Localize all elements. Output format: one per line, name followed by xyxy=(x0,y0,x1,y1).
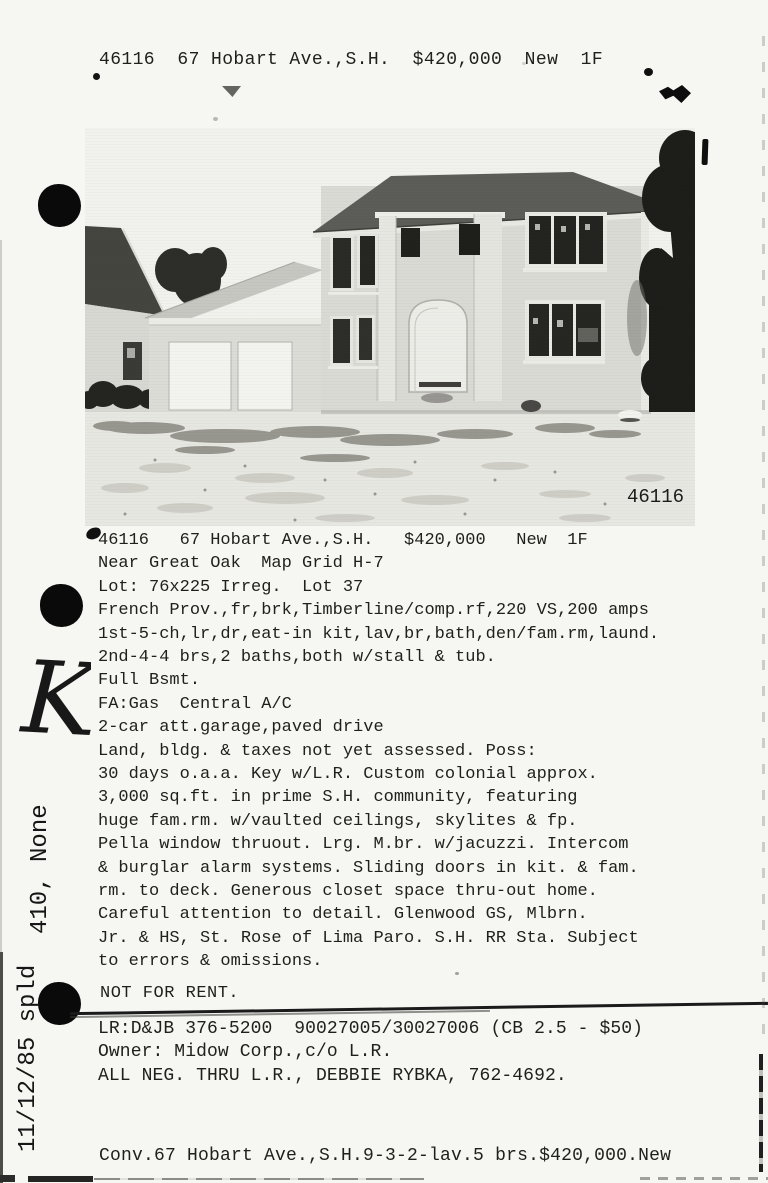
scanned-listing-page: { "header": { "line": "46116 67 Hobart A… xyxy=(0,0,768,1183)
listing-line: to errors & omissions. xyxy=(98,952,322,971)
listing-line: Lot: 76x225 Irreg. Lot 37 xyxy=(98,578,363,597)
listing-line: Land, bldg. & taxes not yet assessed. Po… xyxy=(98,742,537,761)
listing-line: FA:Gas Central A/C xyxy=(98,695,292,714)
agent-line: ALL NEG. THRU L.R., DEBBIE RYBKA, 762-46… xyxy=(98,1066,567,1086)
hip-roof xyxy=(313,172,677,232)
garage-wing xyxy=(145,262,323,412)
agent-line: LR:D&JB 376-5200 90027005/30027006 (CB 2… xyxy=(98,1019,643,1039)
property-photo: 46116 xyxy=(85,128,695,526)
scan-edge-line xyxy=(94,1178,424,1180)
dirt-mottles xyxy=(101,462,665,522)
left-edge-artifact xyxy=(0,952,3,1183)
photo-ground xyxy=(85,406,695,526)
ink-dot xyxy=(93,73,100,80)
house-photo-illustration: 46116 xyxy=(85,128,695,526)
neighbor-house xyxy=(85,226,166,412)
dirt-streaks xyxy=(93,421,641,462)
right-edge-artifact xyxy=(759,1054,763,1172)
ink-tick-mark xyxy=(702,139,709,165)
small-window xyxy=(459,224,480,255)
hole-punch xyxy=(38,184,81,227)
scan-edge-bar xyxy=(28,1176,93,1182)
listing-line: 1st-5-ch,lr,dr,eat-in kit,lav,br,bath,de… xyxy=(98,625,659,644)
tree-clump xyxy=(155,247,227,307)
listing-line: 2-car att.garage,paved drive xyxy=(98,718,384,737)
scan-speck xyxy=(522,62,526,65)
house-facade xyxy=(321,186,649,412)
listing-line: Careful attention to detail. Glenwood GS… xyxy=(98,905,588,924)
left-bay-windows xyxy=(328,233,380,369)
listing-line: Full Bsmt. xyxy=(98,671,200,690)
listing-line: 2nd-4-4 brs,2 baths,both w/stall & tub. xyxy=(98,648,496,667)
right-edge-artifact xyxy=(762,36,765,1046)
garage-door-left xyxy=(169,342,231,410)
dirt-specks xyxy=(124,459,607,522)
listing-line: 30 days o.a.a. Key w/L.R. Custom colonia… xyxy=(98,765,598,784)
not-for-rent-text: NOT FOR RENT. xyxy=(100,984,239,1003)
main-house xyxy=(313,172,677,414)
ink-dot xyxy=(644,68,653,76)
listing-line: Near Great Oak Map Grid H-7 xyxy=(98,554,384,573)
arrow-smudge xyxy=(222,86,241,97)
listing-line: French Prov.,fr,brk,Timberline/comp.rf,2… xyxy=(98,601,649,620)
listing-line: 46116 67 Hobart Ave.,S.H. $420,000 New 1… xyxy=(98,531,588,550)
hole-punch xyxy=(40,584,83,627)
ink-smudge xyxy=(659,85,691,103)
margin-date-note: 11/12/85 spld xyxy=(15,965,42,1152)
divider-rule xyxy=(70,1002,768,1016)
agent-line: Owner: Midow Corp.,c/o L.R. xyxy=(98,1042,392,1062)
photo-sky xyxy=(85,128,695,526)
listing-line: Pella window thruout. Lrg. M.br. w/jacuz… xyxy=(98,835,629,854)
handwritten-letter-k-glyph: K xyxy=(17,645,91,755)
trees-right xyxy=(627,130,695,412)
ground-debris-shadow xyxy=(620,418,640,422)
scan-speck xyxy=(213,117,218,121)
arched-entry xyxy=(409,300,467,392)
entry-bay xyxy=(375,212,505,403)
scan-edge-line xyxy=(640,1177,768,1180)
garage-door-right xyxy=(238,342,292,410)
footer-summary-line: Conv.67 Hobart Ave.,S.H.9-3-2-lav.5 brs.… xyxy=(99,1146,671,1166)
right-block-windows xyxy=(523,212,607,364)
photo-id-label: 46116 xyxy=(627,486,684,508)
handwritten-letter-k: K xyxy=(16,645,91,755)
listing-line: rm. to deck. Generous closet space thru-… xyxy=(98,882,598,901)
listing-line: & burglar alarm systems. Sliding doors i… xyxy=(98,859,639,878)
listing-line: Jr. & HS, St. Rose of Lima Paro. S.H. RR… xyxy=(98,929,639,948)
margin-code-note: 410, None xyxy=(27,804,54,934)
small-window xyxy=(401,228,420,257)
listing-line: 3,000 sq.ft. in prime S.H. community, fe… xyxy=(98,788,577,807)
ground-debris xyxy=(618,410,642,420)
listing-line: huge fam.rm. w/vaulted ceilings, skylite… xyxy=(98,812,577,831)
header-listing-line: 46116 67 Hobart Ave.,S.H. $420,000 New 1… xyxy=(99,50,603,70)
hole-punch xyxy=(38,982,81,1025)
scan-speck xyxy=(455,972,459,975)
left-edge-artifact xyxy=(0,240,2,952)
